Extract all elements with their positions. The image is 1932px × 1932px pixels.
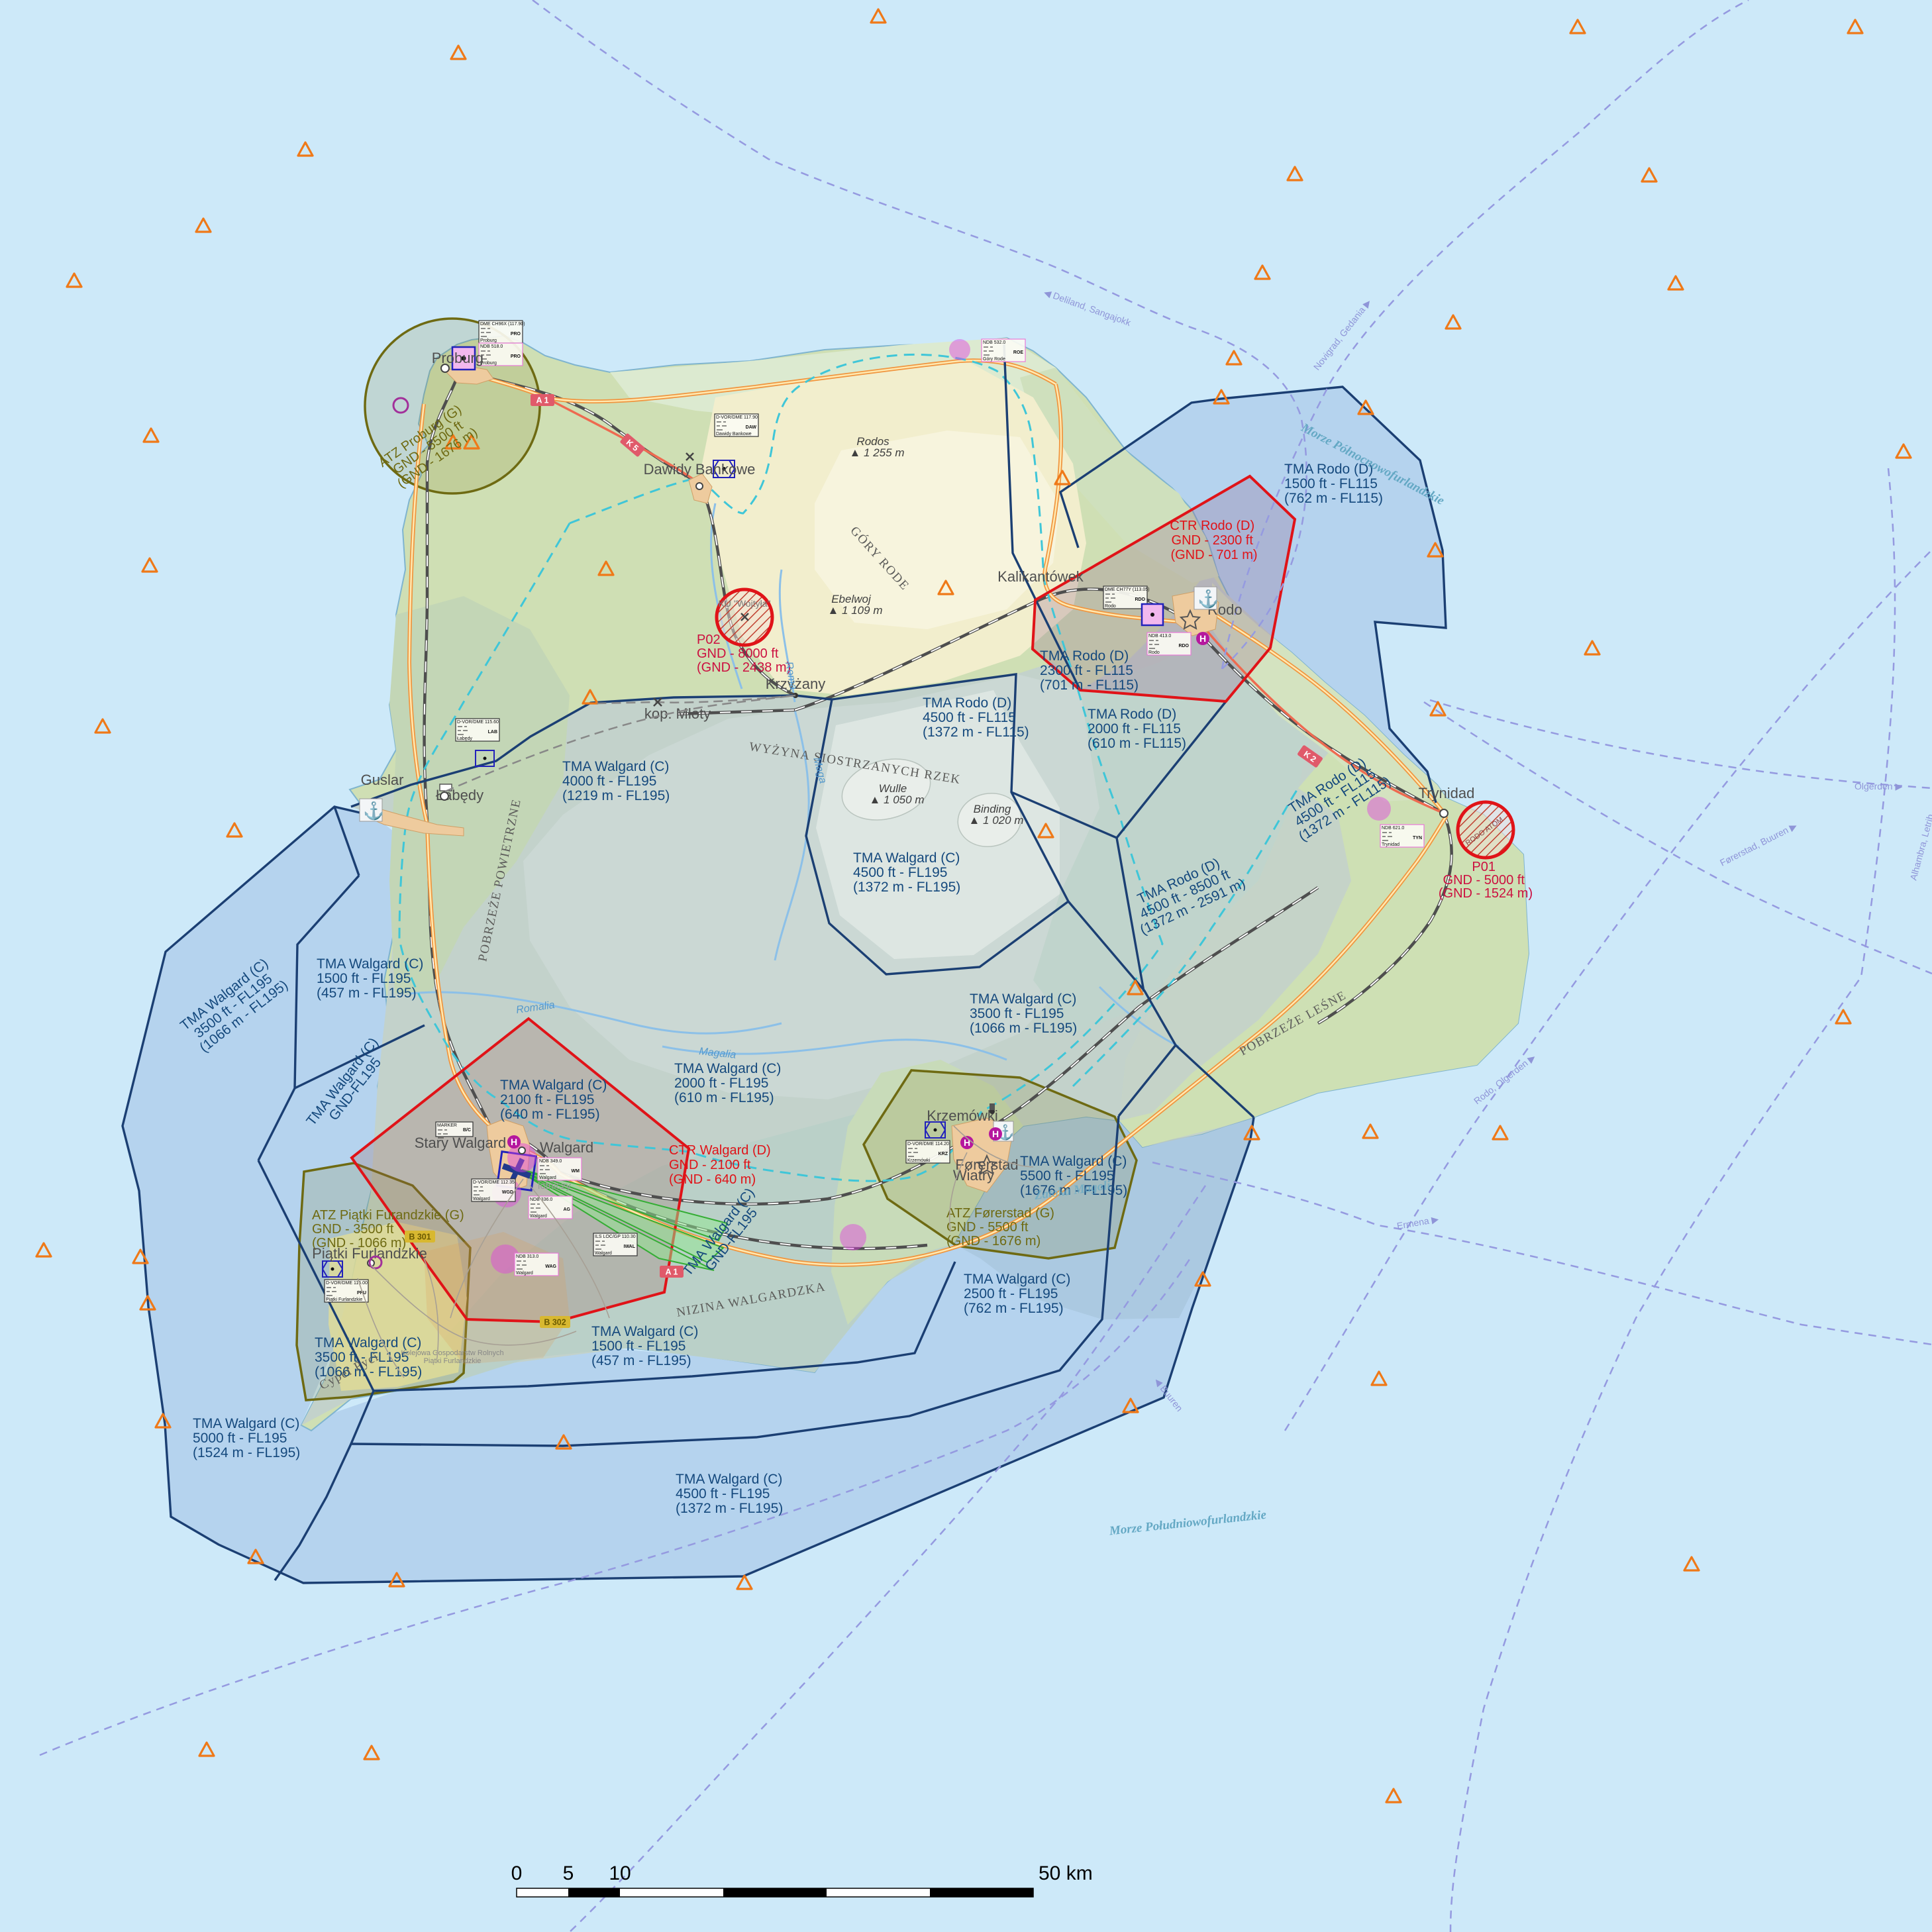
- svg-text:Piątki Furlandzkie: Piątki Furlandzkie: [326, 1297, 362, 1302]
- svg-text:TMA Walgard (C) 4000 ft - FL19: TMA Walgard (C) 4000 ft - FL195 (1219 m …: [562, 759, 673, 803]
- svg-text:ROE: ROE: [1013, 350, 1024, 355]
- svg-text:NDB 413.0: NDB 413.0: [1148, 634, 1171, 638]
- svg-text:Krzemówki: Krzemówki: [927, 1107, 998, 1124]
- svg-text:B/C: B/C: [463, 1128, 471, 1133]
- svg-text:5: 5: [563, 1862, 574, 1884]
- svg-text:TMA Walgard (C) 5000 ft - FL19: TMA Walgard (C) 5000 ft - FL195 (1524 m …: [193, 1416, 303, 1460]
- svg-text:Walgard: Walgard: [540, 1139, 593, 1156]
- svg-text:MARKER: MARKER: [437, 1123, 457, 1128]
- svg-text:TMA Walgard (C) 4500 ft - FL19: TMA Walgard (C) 4500 ft - FL195 (1372 m …: [676, 1472, 786, 1516]
- svg-text:lotniczy: lotniczy: [538, 1180, 572, 1192]
- svg-text:Walgard: Walgard: [473, 1197, 490, 1201]
- svg-text:LAB: LAB: [488, 730, 497, 735]
- svg-text:KRZ: KRZ: [939, 1152, 948, 1156]
- svg-text:KU "Wojtyła": KU "Wojtyła": [719, 598, 771, 609]
- svg-text:TMA Walgard (C) 1500 ft - FL19: TMA Walgard (C) 1500 ft - FL195 (457 m -…: [591, 1324, 702, 1368]
- svg-text:Trynidad: Trynidad: [1382, 842, 1399, 847]
- svg-text:Kalikantówek: Kalikantówek: [997, 568, 1084, 585]
- svg-text:Proburg: Proburg: [432, 350, 483, 366]
- svg-text:TMA Walgard (C) 1500 ft - FL19: TMA Walgard (C) 1500 ft - FL195 (457 m -…: [317, 956, 427, 1001]
- svg-text:Krzemówki: Krzemówki: [907, 1158, 931, 1163]
- svg-text:H: H: [992, 1129, 999, 1139]
- svg-text:Dawidy Bankowe: Dawidy Bankowe: [644, 461, 756, 478]
- svg-text:TMA Walgard (C) 2000 ft - FL19: TMA Walgard (C) 2000 ft - FL195 (610 m -…: [674, 1061, 785, 1105]
- svg-text:D-VOR/DME 117.90: D-VOR/DME 117.90: [716, 415, 758, 420]
- svg-text:NDB 532.0: NDB 532.0: [983, 340, 1005, 345]
- svg-text:D-VOR/DME 116.00: D-VOR/DME 116.00: [326, 1281, 368, 1286]
- svg-text:NDB 349.0: NDB 349.0: [539, 1159, 562, 1164]
- svg-text:Proburg: Proburg: [480, 338, 497, 343]
- svg-text:Walgard: Walgard: [530, 1214, 547, 1219]
- svg-text:▲ 1 109 m: ▲ 1 109 m: [828, 604, 883, 617]
- svg-text:B 302: B 302: [544, 1318, 566, 1327]
- svg-text:Piątki Furlandzkie: Piątki Furlandzkie: [424, 1357, 482, 1365]
- svg-text:10: 10: [609, 1862, 631, 1884]
- svg-text:H: H: [1199, 633, 1206, 644]
- svg-text:Dawidy Bankowe: Dawidy Bankowe: [716, 432, 752, 436]
- svg-text:Olgerden ▶: Olgerden ▶: [1855, 781, 1902, 791]
- svg-text:D-VOR/DME 114.20: D-VOR/DME 114.20: [907, 1142, 949, 1146]
- svg-text:Walgard: Walgard: [539, 1176, 556, 1180]
- svg-text:WM: WM: [572, 1169, 580, 1174]
- svg-text:D-VOR/DME 115.60: D-VOR/DME 115.60: [457, 720, 499, 725]
- svg-text:DME CH96X (117.90): DME CH96X (117.90): [480, 322, 525, 327]
- svg-text:TMA Rodo (D) 4500 ft - FL115 (: TMA Rodo (D) 4500 ft - FL115 (1372 m - F…: [923, 695, 1029, 740]
- svg-text:WGD: WGD: [502, 1190, 513, 1195]
- svg-text:PRO: PRO: [511, 332, 521, 336]
- svg-text:TMA Walgard (C) 4500 ft - FL19: TMA Walgard (C) 4500 ft - FL195 (1372 m …: [853, 850, 964, 895]
- svg-text:▲ 1 255 m: ▲ 1 255 m: [850, 446, 905, 459]
- svg-text:Góry Rode: Góry Rode: [983, 357, 1005, 362]
- svg-text:▲ 1 020 m: ▲ 1 020 m: [969, 814, 1024, 827]
- svg-text:▲ 1 050 m: ▲ 1 050 m: [870, 793, 925, 806]
- svg-text:B 301: B 301: [409, 1233, 431, 1242]
- svg-text:⚓: ⚓: [363, 801, 384, 821]
- svg-text:DAW: DAW: [746, 425, 757, 430]
- svg-text:Rodo: Rodo: [1148, 650, 1160, 655]
- svg-text:H: H: [964, 1137, 970, 1148]
- svg-text:Trynidad: Trynidad: [1419, 785, 1475, 801]
- svg-text:Walgard: Walgard: [595, 1251, 612, 1256]
- svg-text:50 km: 50 km: [1039, 1862, 1093, 1884]
- svg-text:H: H: [511, 1137, 517, 1147]
- svg-text:D-VOR/DME 112.35: D-VOR/DME 112.35: [473, 1180, 515, 1185]
- svg-text:TMA Walgard (C) 2500 ft - FL19: TMA Walgard (C) 2500 ft - FL195 (762 m -…: [964, 1272, 1074, 1316]
- svg-text:Kolejowa Gospodarstw Rolnych: Kolejowa Gospodarstw Rolnych: [401, 1349, 503, 1357]
- svg-text:TMA Walgard (C) 3500 ft - FL19: TMA Walgard (C) 3500 ft - FL195 (1066 m …: [970, 991, 1080, 1036]
- svg-text:PRO: PRO: [511, 354, 521, 359]
- svg-text:TMA Rodo (D) 2000 ft - FL115 (: TMA Rodo (D) 2000 ft - FL115 (610 m - FL…: [1088, 707, 1186, 751]
- svg-text:Guslar: Guslar: [361, 772, 404, 788]
- svg-text:NDB 313.0: NDB 313.0: [516, 1254, 538, 1259]
- svg-text:NDB 518.0: NDB 518.0: [480, 344, 503, 349]
- svg-text:Walgard: Walgard: [516, 1271, 533, 1276]
- svg-text:AG: AG: [564, 1207, 571, 1212]
- svg-text:TMA Rodo (D) 2300 ft - FL115 (: TMA Rodo (D) 2300 ft - FL115 (701 m - FL…: [1040, 648, 1139, 693]
- svg-text:Łabędy: Łabędy: [457, 737, 472, 741]
- svg-text:IWAL: IWAL: [624, 1245, 636, 1249]
- svg-text:NDB 621.0: NDB 621.0: [1382, 826, 1404, 831]
- svg-text:WAG: WAG: [545, 1264, 556, 1269]
- svg-text:Rodo: Rodo: [1105, 604, 1116, 609]
- svg-text:DME CH77Y (113.05): DME CH77Y (113.05): [1105, 587, 1149, 592]
- svg-text:TMA Walgard (C) 2100 ft - FL19: TMA Walgard (C) 2100 ft - FL195 (640 m -…: [500, 1078, 611, 1122]
- svg-text:RDO: RDO: [1178, 644, 1189, 648]
- svg-text:Stary Walgard: Stary Walgard: [415, 1135, 507, 1151]
- svg-text:0: 0: [511, 1862, 523, 1884]
- svg-text:TYN: TYN: [1413, 836, 1422, 840]
- svg-text:A 1: A 1: [536, 396, 549, 405]
- svg-text:CTR Rodo (D) GND - 2300 ft (GN: CTR Rodo (D) GND - 2300 ft (GND - 701 m): [1170, 519, 1258, 562]
- svg-text:ILS LOC/GP 110.30: ILS LOC/GP 110.30: [595, 1235, 636, 1239]
- svg-text:⚓: ⚓: [1197, 589, 1219, 609]
- svg-text:A 1: A 1: [666, 1268, 678, 1277]
- svg-text:RDO: RDO: [1135, 597, 1145, 602]
